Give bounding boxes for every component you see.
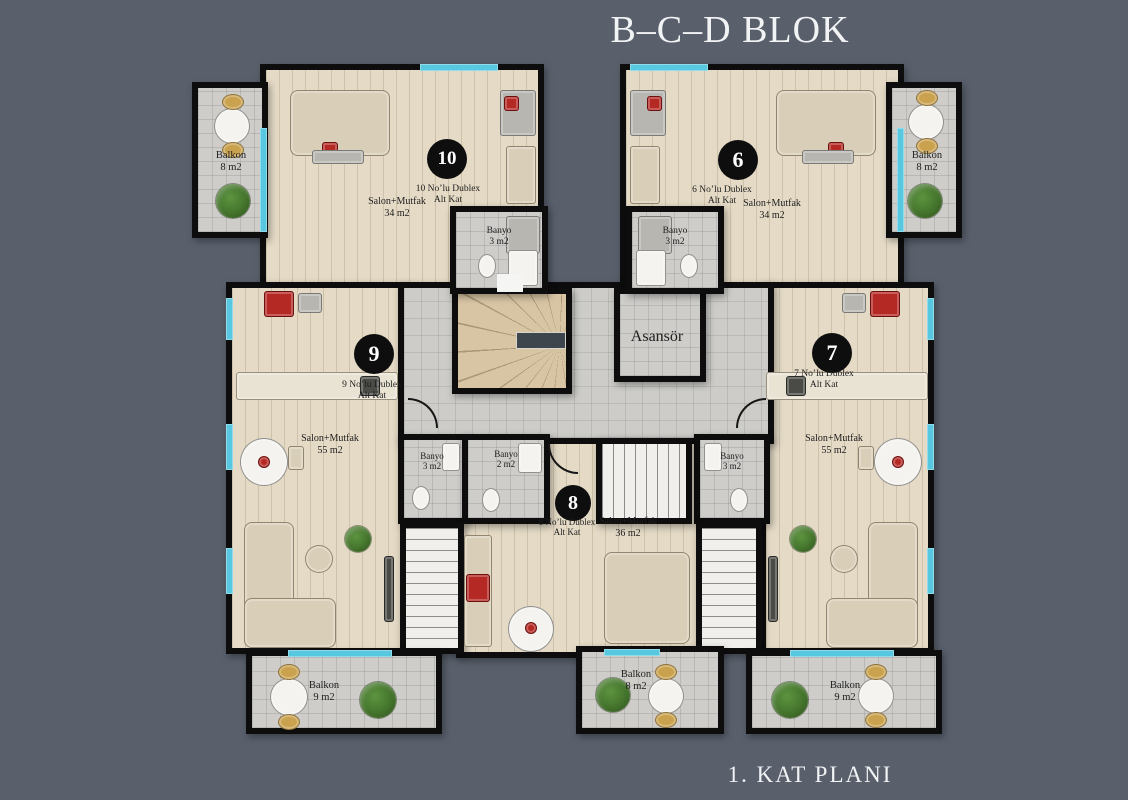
window-unit-7-c <box>927 548 934 594</box>
window-unit-7-a <box>927 298 934 340</box>
unit-9-badge: 9 <box>354 334 394 374</box>
balcony-bottom-center-label: Balkon8 m2 <box>591 669 681 693</box>
unit-6-room-label: Salon+Mutfak34 m2 <box>712 198 832 221</box>
stove <box>264 291 294 317</box>
balcony-bottom-right-label: Balkon9 m2 <box>800 680 890 704</box>
window-unit-6-top <box>630 64 708 71</box>
toilet <box>478 254 496 278</box>
window-balcony-bottom-left <box>288 650 392 657</box>
decor <box>647 96 662 111</box>
patio-chair <box>222 94 244 110</box>
stove <box>466 574 490 602</box>
elevator-label: Asansör <box>607 328 707 346</box>
window-balcony-top-right <box>897 128 904 232</box>
balcony-top-left-label: Balkon8 m2 <box>186 150 276 174</box>
bath-7-label: Banyo3 m2 <box>697 451 767 472</box>
plant <box>790 526 816 552</box>
window-balcony-bottom-center <box>604 649 660 656</box>
patio-chair <box>655 712 677 728</box>
unit-10-room-label: Salon+Mutfak34 m2 <box>337 196 457 219</box>
coffee-table <box>830 545 858 573</box>
sofa <box>290 90 390 156</box>
sofa <box>776 90 876 156</box>
unit-7-stairs <box>696 522 762 654</box>
patio-chair <box>916 90 938 106</box>
table-decor <box>258 456 270 468</box>
balcony-bottom-left-label: Balkon9 m2 <box>279 680 369 704</box>
unit-9-room-label: Salon+Mutfak55 m2 <box>270 433 390 456</box>
page-title: B–C–D BLOK <box>580 8 880 52</box>
toilet <box>482 488 500 512</box>
unit-9-stairs <box>400 522 464 654</box>
window-unit-9-c <box>226 548 233 594</box>
floor-plan: B–C–D BLOK 1. KAT PLANI 10 6 9 7 8 <box>0 0 1128 800</box>
sofa <box>244 598 336 648</box>
plant <box>216 184 250 218</box>
unit-8-room-label: Salon+Mutfak36 m2 <box>583 516 673 539</box>
sink <box>298 293 322 313</box>
window-unit-10-top <box>420 64 498 71</box>
patio-chair <box>278 664 300 680</box>
bath-9-label: Banyo3 m2 <box>397 451 467 472</box>
window-balcony-bottom-right <box>790 650 894 657</box>
tv <box>768 556 778 622</box>
toilet <box>412 486 430 510</box>
plant <box>908 184 942 218</box>
bath-10-label: Banyo3 m2 <box>459 226 539 248</box>
coffee-table <box>305 545 333 573</box>
balcony-top-right-label: Balkon8 m2 <box>882 150 972 174</box>
floor-caption: 1. KAT PLANI <box>710 762 910 788</box>
kitchen-counter <box>630 146 660 204</box>
sink <box>842 293 866 313</box>
stairwell-door-opening <box>497 274 523 292</box>
unit-7-name: 7 No’lu DublexAlt Kat <box>764 369 884 391</box>
tv <box>384 556 394 622</box>
unit-10-badge: 10 <box>427 139 467 179</box>
patio-chair <box>865 712 887 728</box>
table-decor <box>525 622 537 634</box>
bath-6-label: Banyo3 m2 <box>635 226 715 248</box>
plant <box>345 526 371 552</box>
bath-8-label: Banyo2 m2 <box>471 449 541 470</box>
patio-chair <box>278 714 300 730</box>
unit-9-name: 9 No’lu DublexAlt Kat <box>312 380 432 402</box>
kitchen-counter <box>506 146 536 204</box>
stove <box>870 291 900 317</box>
window-unit-9-a <box>226 298 233 340</box>
table-decor <box>892 456 904 468</box>
unit-7-badge: 7 <box>812 333 852 373</box>
window-unit-9-b <box>226 424 233 470</box>
stair-landing <box>516 332 566 349</box>
washing-machine <box>636 250 666 286</box>
sofa <box>604 552 690 644</box>
unit-6-badge: 6 <box>718 140 758 180</box>
toilet <box>680 254 698 278</box>
patio-table <box>908 104 944 140</box>
window-unit-7-b <box>927 424 934 470</box>
sofa <box>826 598 918 648</box>
tv-unit <box>802 150 854 164</box>
unit-8-stairs <box>596 438 692 524</box>
patio-table <box>214 108 250 144</box>
window-balcony-top-left <box>260 128 267 232</box>
patio-chair <box>865 664 887 680</box>
tv-unit <box>312 150 364 164</box>
unit-7-room-label: Salon+Mutfak55 m2 <box>774 433 894 456</box>
toilet <box>730 488 748 512</box>
decor <box>504 96 519 111</box>
